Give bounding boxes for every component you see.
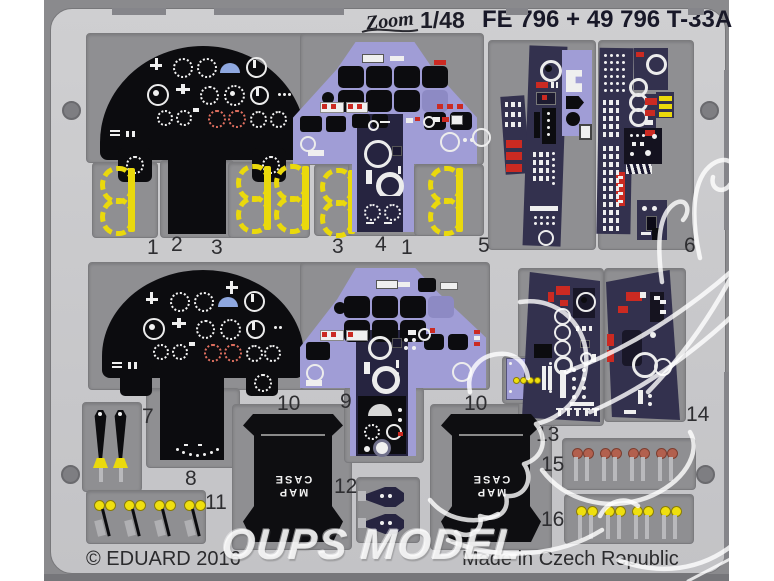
part-number-label: 3 <box>332 235 344 259</box>
pe-part-detail <box>640 142 644 146</box>
pe-part-detail <box>552 176 555 179</box>
pe-part-detail <box>200 86 219 105</box>
pe-part-detail <box>603 154 619 159</box>
tooling-hole <box>62 101 81 120</box>
pe-part-detail <box>110 130 120 132</box>
pe-part-detail <box>520 377 527 384</box>
pe-part-detail <box>198 444 202 446</box>
fret-edge-notch <box>724 70 729 230</box>
pe-part-detail <box>196 320 215 339</box>
pe-part-detail <box>358 491 366 501</box>
pe-part-detail <box>208 110 226 128</box>
pe-part-detail <box>274 326 277 329</box>
pe-part-detail <box>540 216 543 219</box>
pe-part-detail <box>630 134 633 137</box>
pe-part-detail <box>652 206 657 211</box>
pe-part-detail <box>551 82 554 88</box>
pe-part-detail <box>110 134 120 136</box>
pe-part-detail <box>98 412 102 416</box>
pe-part-detail <box>390 56 404 61</box>
pe-part-detail <box>254 374 272 392</box>
pe-part-detail <box>396 372 399 375</box>
pe-part-detail <box>662 515 666 539</box>
part-number-label: 7 <box>142 405 154 429</box>
pe-part-detail <box>153 344 169 360</box>
pe-part-detail <box>250 86 269 105</box>
pe-part-detail <box>392 338 402 348</box>
pe-part-detail <box>364 140 392 168</box>
pe-part-detail <box>348 104 353 109</box>
pe-part-detail <box>603 100 619 105</box>
pe-part-detail <box>380 494 384 498</box>
pe-part-detail <box>246 320 265 339</box>
pe-part-detail <box>348 332 353 337</box>
pe-part-detail <box>440 132 460 152</box>
pe-part-detail <box>616 89 619 92</box>
pe-part-detail <box>182 451 185 454</box>
pe-part-detail <box>622 61 625 64</box>
pe-part-detail <box>583 408 590 416</box>
pe-part-detail <box>505 112 521 117</box>
pe-part-detail <box>547 126 550 129</box>
pe-part-detail <box>645 150 651 156</box>
pe-part-detail <box>422 90 448 112</box>
pe-part-detail <box>119 468 123 482</box>
pe-part-detail <box>440 282 458 290</box>
tooling-hole <box>696 465 715 484</box>
pe-part-detail <box>622 89 625 92</box>
pe-part-detail <box>616 54 619 57</box>
pe-part-detail <box>618 184 623 187</box>
part-number-label: 15 <box>541 453 564 477</box>
map-case-label-line2: CASE <box>472 472 511 485</box>
pe-part-detail <box>506 140 522 148</box>
pe-part-detail <box>412 338 416 342</box>
tooling-hole <box>700 101 719 120</box>
pe-part-detail <box>224 85 245 106</box>
pe-part-detail <box>659 96 672 101</box>
pe-part-detail <box>366 170 372 184</box>
pe-part-detail <box>422 66 448 88</box>
pe-part-detail <box>610 82 613 85</box>
pe-part-detail <box>278 93 281 96</box>
pe-part-detail <box>533 168 549 173</box>
pe-part-detail <box>616 75 619 78</box>
etched-recess <box>82 402 142 492</box>
pe-part-detail <box>604 75 607 78</box>
pe-part-detail <box>398 178 401 181</box>
pe-part-detail <box>552 158 555 161</box>
pe-part-detail <box>648 402 652 406</box>
pe-part-detail <box>603 108 619 113</box>
pe-part-detail <box>646 54 667 75</box>
pe-part-detail <box>642 206 647 211</box>
part-number-label: 11 <box>205 491 227 515</box>
pe-part-detail <box>572 377 576 381</box>
photo-bottom-edge <box>44 574 729 581</box>
pe-part-detail <box>604 61 607 64</box>
pe-part-detail <box>603 170 619 175</box>
pe-part-detail <box>640 292 646 298</box>
pe-part-detail <box>366 90 392 112</box>
pe-part-detail <box>552 182 555 185</box>
pe-part-detail <box>538 230 554 246</box>
pe-part-detail <box>641 232 651 235</box>
pe-part-detail <box>300 116 322 132</box>
pe-part-detail <box>157 110 173 126</box>
part-number-label: 12 <box>334 475 357 499</box>
pe-part-detail <box>572 368 576 372</box>
pe-part-detail <box>344 296 370 318</box>
pe-part-detail <box>412 346 416 350</box>
map-case-label: MAP CASE <box>243 472 343 498</box>
pe-part-detail <box>610 61 613 64</box>
pe-part-detail <box>547 112 550 115</box>
pe-part-detail <box>540 222 543 225</box>
pe-part-detail <box>566 112 580 126</box>
pe-part-detail <box>669 457 673 481</box>
pe-part-detail <box>589 515 593 539</box>
pe-part-detail <box>565 408 572 416</box>
pe-part-detail <box>194 292 214 312</box>
pe-part-detail <box>534 112 540 138</box>
pe-part-detail <box>216 448 219 451</box>
pe-part-detail <box>220 319 241 340</box>
pe-part-detail <box>506 152 522 160</box>
pe-part-detail <box>582 395 586 399</box>
pe-part-detail <box>630 152 634 156</box>
part-number-label: 9 <box>340 390 352 414</box>
pe-part-detail <box>457 104 463 109</box>
pe-part-detail <box>572 395 576 399</box>
pe-part-detail <box>650 332 656 338</box>
pe-part-detail <box>172 344 188 360</box>
pe-part-detail <box>634 515 638 539</box>
pe-part-detail <box>197 58 217 78</box>
pe-part-detail <box>177 318 181 328</box>
painted-harness-part <box>100 166 136 234</box>
pe-part-detail <box>447 104 453 109</box>
pe-part-detail <box>176 448 179 451</box>
pe-part-detail <box>331 104 336 109</box>
pe-part-detail <box>442 117 449 122</box>
pe-part-detail <box>433 117 440 122</box>
pe-part-detail <box>626 164 652 174</box>
pe-part-detail <box>582 368 586 372</box>
pe-part-detail <box>376 280 398 289</box>
pe-part-detail <box>652 134 657 139</box>
pe-part-detail <box>636 52 644 57</box>
pe-part-detail <box>548 292 554 302</box>
pe-part-detail <box>580 340 590 348</box>
pe-part-detail <box>603 178 619 183</box>
pe-part-detail <box>552 152 555 155</box>
pe-part-detail <box>372 296 398 318</box>
painted-harness-part <box>320 168 356 236</box>
pe-part-detail <box>434 60 446 65</box>
pe-part-detail <box>246 345 263 362</box>
pe-part-detail <box>622 82 625 85</box>
pe-part-detail <box>645 515 649 539</box>
pe-part-detail <box>610 54 613 57</box>
pe-part-detail <box>415 117 420 121</box>
pe-part-detail <box>618 306 628 313</box>
pe-part-detail <box>574 408 581 416</box>
pe-part-detail <box>552 170 555 173</box>
pe-part-detail <box>463 138 467 142</box>
pe-part-detail <box>560 370 566 398</box>
pe-part-detail <box>376 442 388 454</box>
pe-part-detail <box>556 82 558 88</box>
pe-part-detail <box>540 60 562 82</box>
pe-part-detail <box>126 131 129 137</box>
pe-part-detail <box>149 324 155 330</box>
pe-part-detail <box>546 222 549 225</box>
pe-part-detail <box>603 226 619 231</box>
pe-part-detail <box>112 362 122 364</box>
map-case-label-line2: CASE <box>274 472 313 485</box>
painted-harness-part <box>274 164 310 232</box>
pe-part-detail <box>228 110 246 128</box>
pe-part-detail <box>118 412 122 416</box>
pe-part-detail <box>189 453 192 456</box>
pe-part-detail <box>603 124 619 129</box>
pe-part-detail <box>105 500 116 511</box>
part-number-label: 6 <box>684 234 696 258</box>
pe-part-detail <box>554 308 571 325</box>
pe-part-detail <box>624 410 636 414</box>
pe-part-detail <box>638 390 643 404</box>
pe-part-detail <box>582 377 586 381</box>
pe-part-detail <box>533 152 549 157</box>
pe-part-detail <box>398 408 402 412</box>
pe-part-detail <box>244 291 265 312</box>
pe-part-detail <box>288 93 291 96</box>
pe-part-detail <box>362 54 384 63</box>
pe-part-detail <box>578 515 582 539</box>
map-case-label-line1: MAP <box>476 485 506 498</box>
pe-part-detail <box>630 457 634 481</box>
etched-recess <box>562 438 696 490</box>
pe-part-detail <box>610 89 613 92</box>
pe-part-detail <box>331 332 336 337</box>
pe-part-detail <box>474 330 480 334</box>
part-number-label: 8 <box>185 467 197 491</box>
pe-part-detail <box>384 204 401 221</box>
pe-part-detail <box>398 166 401 174</box>
pe-part-detail <box>618 200 623 203</box>
pe-part-detail <box>160 372 224 460</box>
pe-part-detail <box>168 150 226 234</box>
pe-part-detail <box>270 111 287 128</box>
pe-part-detail <box>581 297 587 303</box>
pe-part-detail <box>534 216 537 219</box>
pe-part-detail <box>430 328 435 333</box>
pe-part-detail <box>230 281 233 294</box>
pe-part-detail <box>527 377 534 384</box>
pe-part-detail <box>132 131 135 137</box>
pe-part-detail <box>552 222 555 225</box>
pe-part-detail <box>451 115 463 125</box>
pe-part-detail <box>264 345 281 362</box>
pe-part-detail <box>398 418 402 422</box>
part-number-label: 3 <box>211 236 223 260</box>
pe-part-detail <box>404 338 408 342</box>
oups-model-watermark: OUPS MODEL <box>220 521 523 570</box>
pe-part-detail <box>533 160 549 165</box>
pe-part-detail <box>368 120 379 131</box>
pe-part-detail <box>364 204 381 221</box>
pe-part-detail <box>547 119 550 122</box>
pe-part-detail <box>645 120 653 125</box>
pe-part-detail <box>536 82 548 88</box>
pe-part-detail <box>322 332 327 337</box>
pe-part-detail <box>246 57 267 78</box>
pe-part-detail <box>505 122 521 127</box>
pe-part-detail <box>603 146 619 151</box>
part-number-label: 2 <box>171 233 183 257</box>
part-number-label: 4 <box>375 233 387 257</box>
pe-part-detail <box>545 65 552 72</box>
pe-part-detail <box>509 362 512 365</box>
pe-part-detail <box>603 116 619 121</box>
pe-part-detail <box>155 58 158 70</box>
pe-part-detail <box>549 390 552 393</box>
pe-part-detail <box>398 282 410 287</box>
pe-part-detail <box>579 124 592 140</box>
pe-part-detail <box>660 310 666 314</box>
pe-part-detail <box>547 133 550 136</box>
pe-part-detail <box>542 95 547 100</box>
pe-part-detail <box>306 380 322 386</box>
pe-part-detail <box>533 176 549 181</box>
pe-part-detail <box>604 89 607 92</box>
pe-part-detail <box>618 176 623 179</box>
pe-part-detail <box>112 366 122 368</box>
pe-part-detail <box>135 500 146 511</box>
pe-part-detail <box>193 108 199 112</box>
pe-part-detail <box>224 344 242 362</box>
fret-edge-notch <box>688 8 704 15</box>
pe-part-detail <box>474 342 480 346</box>
pe-part-detail <box>394 66 420 88</box>
pe-part-detail <box>338 66 364 88</box>
pe-part-detail <box>306 342 330 360</box>
pe-part-detail <box>134 362 137 369</box>
pe-part-detail <box>556 408 563 416</box>
pe-part-detail <box>592 354 596 362</box>
fret-edge-notch <box>506 8 528 15</box>
copyright-text: © EDUARD 2016 <box>86 548 241 571</box>
pe-part-detail <box>574 457 578 481</box>
pe-part-detail <box>150 292 153 304</box>
pe-part-detail <box>210 451 213 454</box>
map-case-label-line1: MAP <box>278 485 308 498</box>
pe-part-detail <box>364 424 380 440</box>
pe-part-detail <box>603 218 619 223</box>
pe-part-detail <box>203 453 206 456</box>
pe-part-detail <box>654 358 672 376</box>
pe-part-detail <box>572 386 576 390</box>
part-number-label: 14 <box>686 403 709 427</box>
pe-part-detail <box>472 128 491 147</box>
pe-part-detail <box>617 515 621 539</box>
pe-part-detail <box>616 82 619 85</box>
pe-part-detail <box>604 82 607 85</box>
part-number-label: 1 <box>147 236 159 260</box>
pe-part-detail <box>622 68 625 71</box>
pe-part-detail <box>603 186 619 191</box>
pe-part-detail <box>552 164 555 167</box>
pe-part-detail <box>505 102 521 107</box>
painted-harness-part <box>428 166 464 234</box>
map-case-fold-line <box>261 434 325 436</box>
pe-part-detail <box>368 336 392 360</box>
pe-part-detail <box>603 194 619 199</box>
pe-part-detail <box>618 192 623 195</box>
pe-part-detail <box>189 342 195 346</box>
pe-part-detail <box>406 118 413 123</box>
pe-part-detail <box>364 446 370 452</box>
pe-part-detail <box>632 142 636 146</box>
pe-part-detail <box>128 362 131 369</box>
pe-part-detail <box>648 394 652 398</box>
pe-part-detail <box>366 66 392 88</box>
pe-part-detail <box>610 68 613 71</box>
pe-part-detail <box>418 278 436 292</box>
pe-part-detail <box>392 146 402 156</box>
painted-harness-part <box>236 164 272 232</box>
pe-part-detail <box>570 402 594 406</box>
part-number-label: 16 <box>541 508 564 532</box>
pe-part-detail <box>641 457 645 481</box>
pe-part-detail <box>283 93 286 96</box>
pe-part-detail <box>170 292 190 312</box>
pe-part-detail <box>506 164 522 172</box>
pe-part-detail <box>636 134 639 137</box>
part-number-label: 13 <box>536 423 559 447</box>
pe-part-detail <box>334 302 346 314</box>
pe-part-detail <box>607 334 614 346</box>
pe-part-detail <box>549 362 552 365</box>
pe-part-detail <box>509 390 512 393</box>
pe-part-detail <box>153 90 159 96</box>
pe-part-detail <box>642 134 645 137</box>
pe-part-detail <box>396 360 399 368</box>
pe-part-detail <box>279 326 282 329</box>
scale-label: 1/48 <box>420 7 465 34</box>
pe-part-detail <box>603 202 619 207</box>
pe-part-detail <box>404 346 408 350</box>
fret-edge-notch <box>112 8 166 15</box>
pe-part-detail <box>560 300 568 306</box>
pe-part-detail <box>659 104 672 109</box>
pe-part-detail <box>196 454 199 457</box>
pe-part-detail <box>204 344 222 362</box>
pe-part-detail <box>616 61 619 64</box>
pe-part-detail <box>474 336 480 340</box>
pe-part-detail <box>534 344 552 358</box>
pe-part-detail <box>576 326 592 331</box>
pe-part-detail <box>534 222 537 225</box>
pe-part-detail <box>400 296 426 318</box>
pe-part-detail <box>622 75 625 78</box>
pe-part-detail <box>176 110 192 126</box>
pe-part-detail <box>394 90 420 112</box>
pe-part-detail <box>585 457 589 481</box>
pe-part-detail <box>181 84 185 94</box>
pe-part-detail <box>582 386 586 390</box>
